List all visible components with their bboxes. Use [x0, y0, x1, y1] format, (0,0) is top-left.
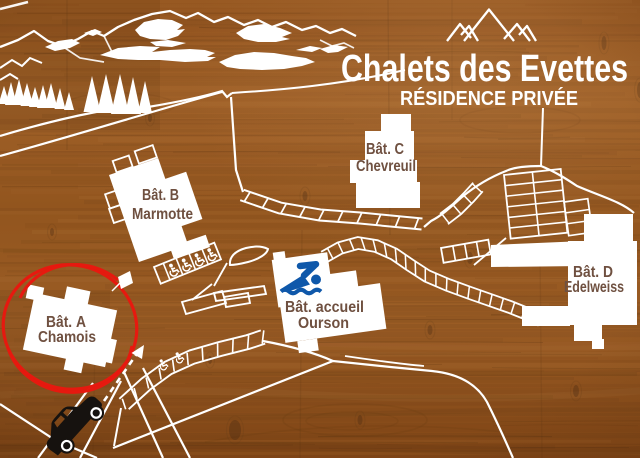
svg-text:Chevreuil: Chevreuil	[356, 158, 416, 175]
svg-text:RÉSIDENCE PRIVÉE: RÉSIDENCE PRIVÉE	[400, 87, 578, 110]
svg-text:Ourson: Ourson	[298, 315, 349, 332]
svg-text:Marmotte: Marmotte	[132, 206, 193, 223]
svg-text:Bât. C: Bât. C	[366, 141, 404, 158]
svg-text:Chalets des Evettes: Chalets des Evettes	[341, 48, 628, 90]
svg-text:Chamois: Chamois	[38, 329, 96, 346]
svg-text:Bât. accueil: Bât. accueil	[285, 299, 364, 316]
svg-text:Bât. B: Bât. B	[142, 187, 179, 204]
svg-text:Edelweiss: Edelweiss	[564, 279, 624, 296]
